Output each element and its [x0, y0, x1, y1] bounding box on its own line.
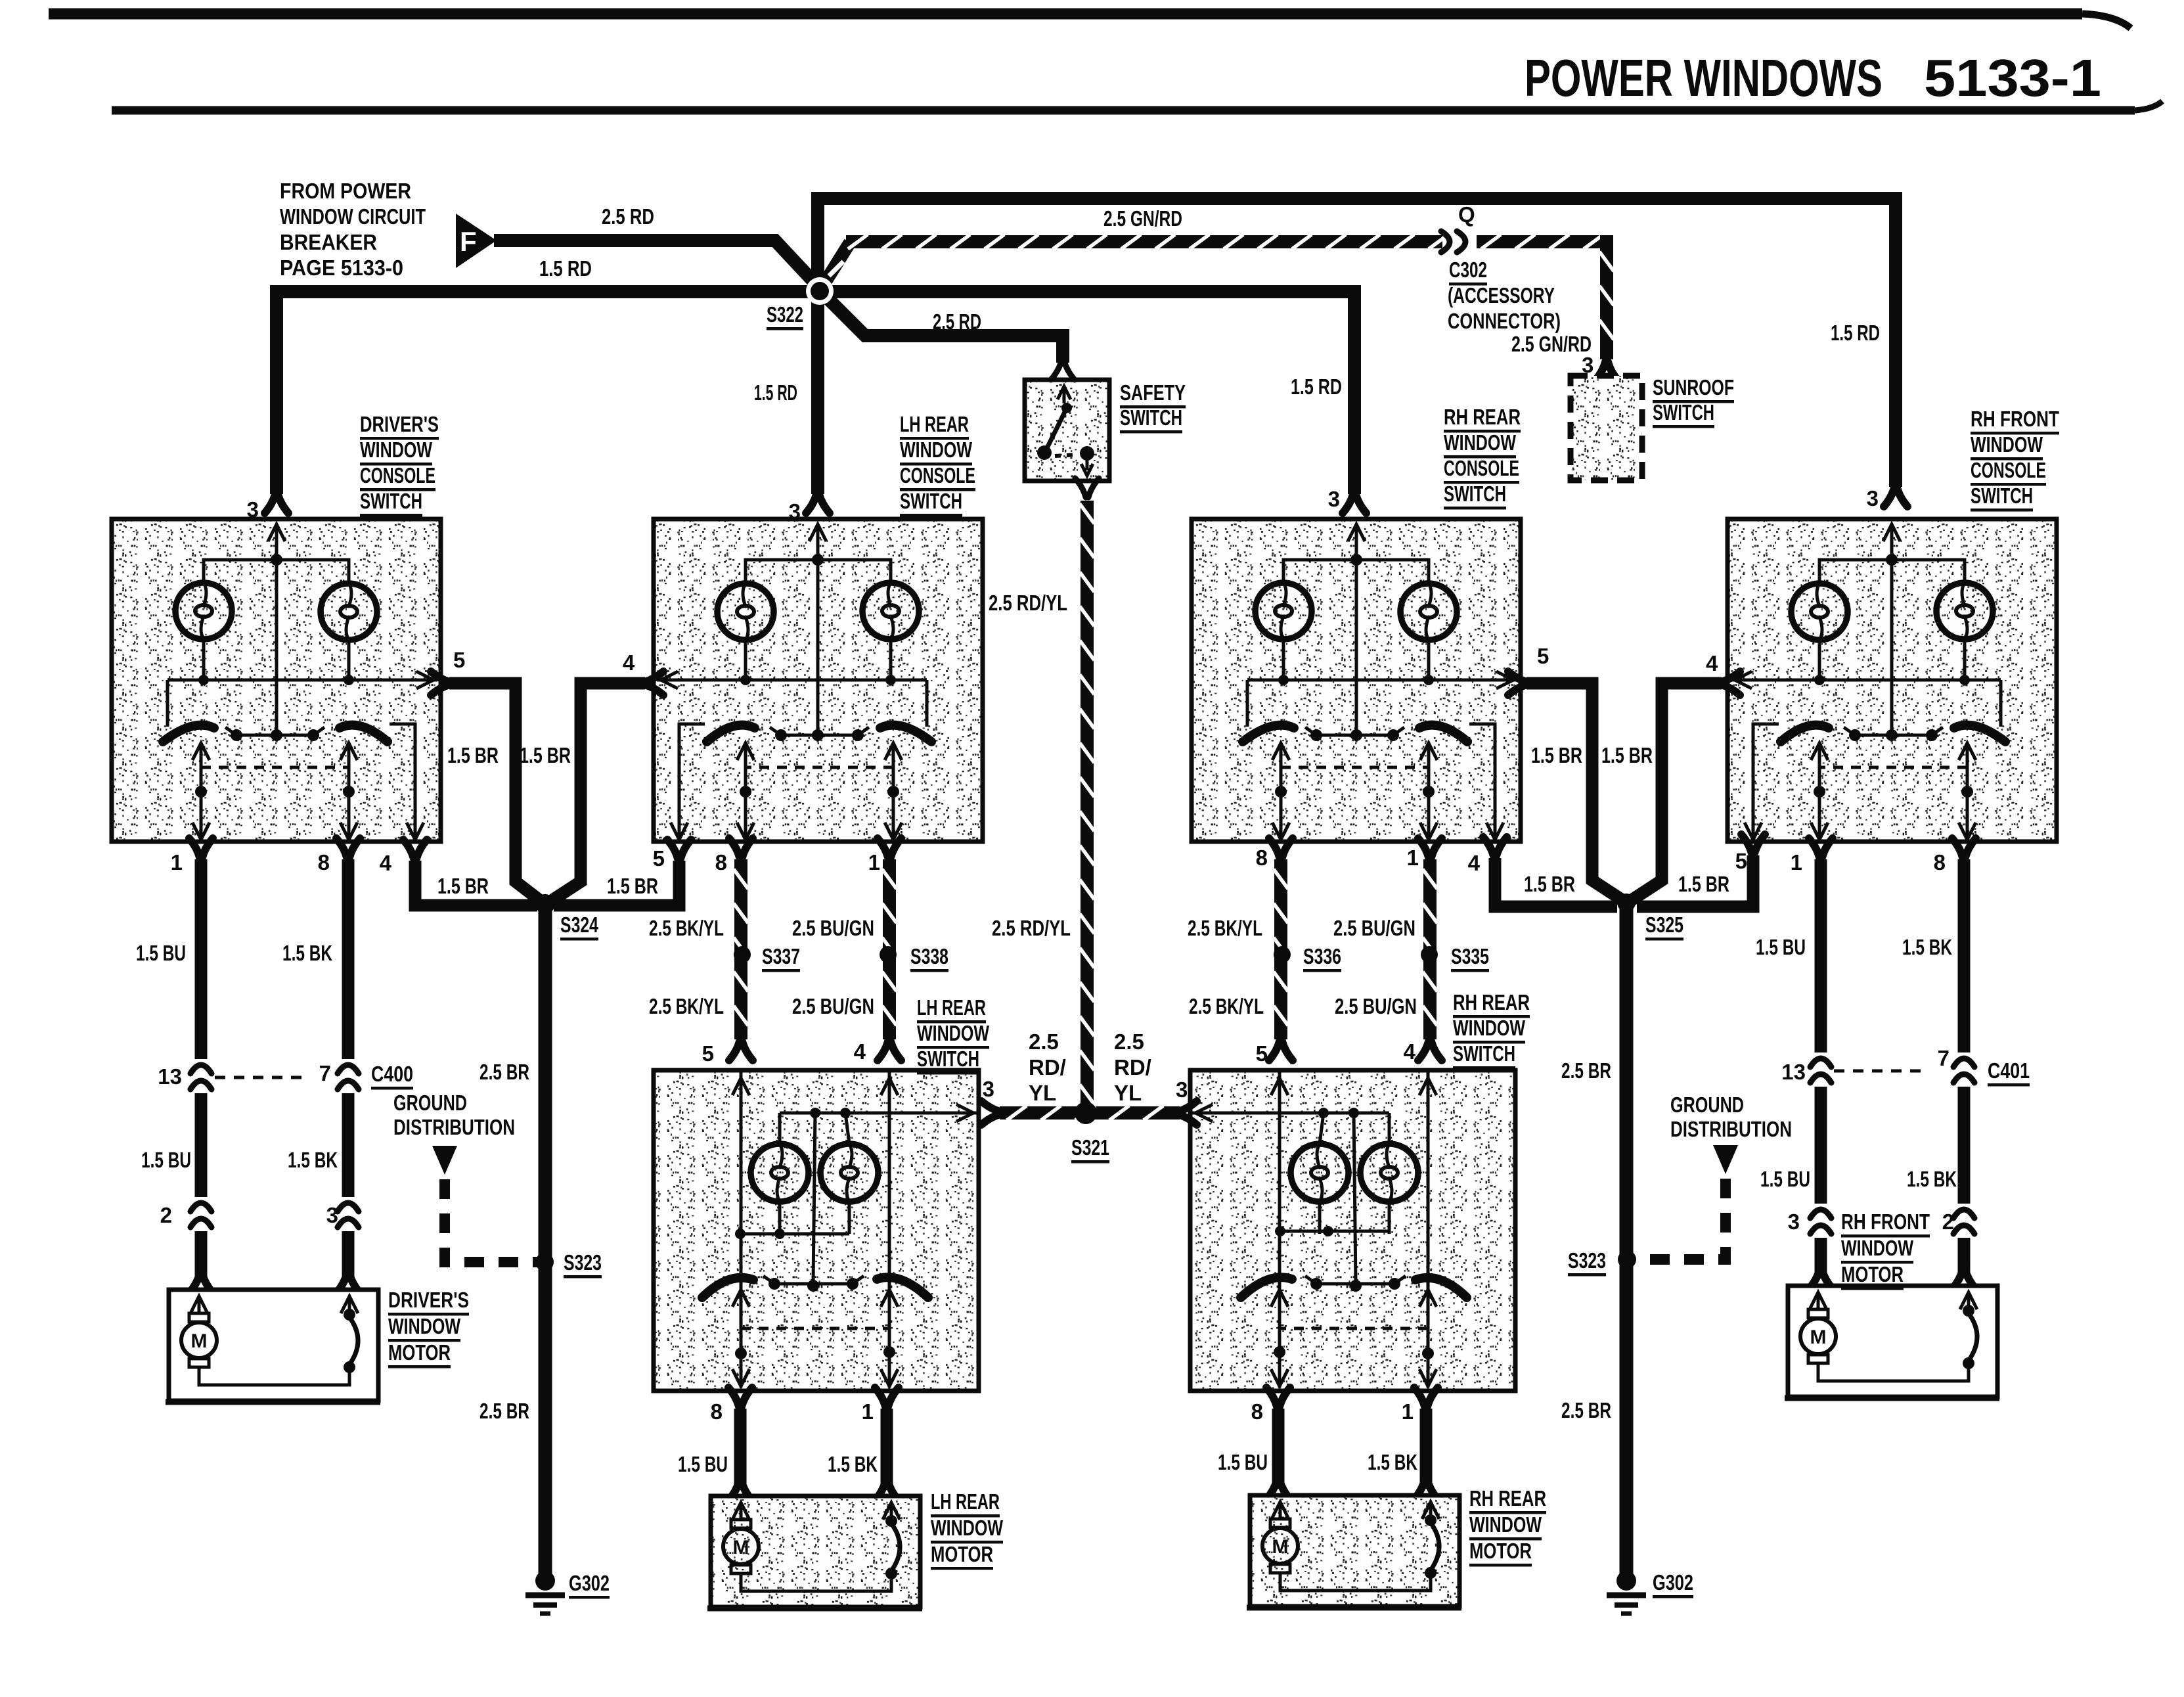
svg-text:1.5 BK: 1.5 BK [828, 1452, 878, 1476]
svg-text:1.5 BK: 1.5 BK [288, 1148, 338, 1172]
svg-text:5133-1: 5133-1 [1924, 49, 2101, 107]
svg-text:13: 13 [158, 1064, 182, 1089]
svg-text:CONNECTOR): CONNECTOR) [1448, 309, 1561, 333]
svg-text:1.5 BK: 1.5 BK [1368, 1450, 1417, 1474]
svg-text:7: 7 [319, 1061, 331, 1085]
svg-text:1.5 RD: 1.5 RD [1291, 374, 1342, 399]
svg-text:1.5 BU: 1.5 BU [1218, 1450, 1268, 1474]
svg-text:RH REAR: RH REAR [1444, 405, 1521, 429]
svg-text:2.5 BK/YL: 2.5 BK/YL [649, 994, 724, 1018]
svg-text:CONSOLE: CONSOLE [1444, 456, 1519, 480]
svg-text:8: 8 [711, 1399, 723, 1424]
svg-text:WINDOW: WINDOW [360, 438, 433, 462]
svg-text:4: 4 [854, 1039, 866, 1064]
svg-text:1: 1 [171, 850, 183, 874]
svg-text:5: 5 [1735, 849, 1747, 873]
svg-text:SWITCH: SWITCH [1653, 400, 1714, 424]
svg-text:3: 3 [247, 497, 259, 522]
svg-text:2.5 BK/YL: 2.5 BK/YL [1189, 994, 1264, 1018]
svg-text:5: 5 [653, 846, 665, 871]
svg-text:1.5 BK: 1.5 BK [1907, 1167, 1957, 1191]
svg-text:2.5 BK/YL: 2.5 BK/YL [649, 916, 724, 940]
svg-text:M: M [1272, 1536, 1289, 1558]
svg-text:RH REAR: RH REAR [1453, 990, 1530, 1014]
svg-text:DISTRIBUTION: DISTRIBUTION [1670, 1117, 1792, 1141]
svg-text:WINDOW CIRCUIT: WINDOW CIRCUIT [280, 204, 426, 229]
svg-text:2.5 RD: 2.5 RD [933, 309, 981, 334]
svg-text:LH REAR: LH REAR [917, 995, 986, 1020]
svg-text:1.5 BR: 1.5 BR [1601, 743, 1653, 767]
svg-text:FROM POWER: FROM POWER [280, 179, 411, 203]
svg-text:RH FRONT: RH FRONT [1841, 1210, 1930, 1234]
svg-text:2.5 GN/RD: 2.5 GN/RD [1103, 206, 1182, 231]
svg-text:S325: S325 [1645, 913, 1683, 937]
svg-text:3: 3 [1328, 487, 1340, 511]
svg-text:WINDOW: WINDOW [1971, 432, 2043, 457]
svg-text:WINDOW: WINDOW [917, 1021, 990, 1045]
svg-text:S323: S323 [1568, 1248, 1606, 1273]
svg-text:PAGE 5133-0: PAGE 5133-0 [280, 256, 403, 280]
svg-text:1.5 BU: 1.5 BU [141, 1148, 191, 1172]
svg-text:Q: Q [1458, 202, 1475, 227]
svg-text:1: 1 [1791, 850, 1802, 874]
svg-text:WINDOW: WINDOW [388, 1314, 461, 1338]
svg-text:SWITCH: SWITCH [900, 489, 962, 513]
svg-text:S338: S338 [910, 944, 948, 968]
svg-text:1.5 BU: 1.5 BU [1760, 1167, 1810, 1191]
svg-text:WINDOW: WINDOW [900, 438, 973, 462]
svg-text:F: F [460, 226, 477, 257]
svg-text:BREAKER: BREAKER [280, 230, 377, 254]
svg-text:3: 3 [1867, 486, 1879, 510]
svg-text:SWITCH: SWITCH [360, 489, 422, 513]
svg-text:RD/: RD/ [1029, 1055, 1066, 1079]
svg-text:3: 3 [789, 499, 801, 524]
svg-text:2.5 RD/YL: 2.5 RD/YL [992, 916, 1071, 940]
svg-text:1: 1 [1407, 846, 1419, 870]
svg-text:1.5 RD: 1.5 RD [754, 380, 797, 405]
svg-text:SWITCH: SWITCH [1453, 1041, 1515, 1066]
svg-text:5: 5 [453, 648, 465, 672]
svg-text:C400: C400 [371, 1062, 413, 1086]
svg-text:C401: C401 [1988, 1058, 2030, 1083]
svg-text:1.5 BR: 1.5 BR [437, 874, 489, 898]
svg-text:MOTOR: MOTOR [1841, 1262, 1904, 1286]
svg-text:WINDOW: WINDOW [1841, 1236, 1914, 1260]
svg-text:2.5: 2.5 [1114, 1030, 1144, 1054]
svg-text:4: 4 [623, 650, 635, 675]
svg-text:MOTOR: MOTOR [388, 1340, 451, 1365]
svg-text:2.5 BR: 2.5 BR [479, 1060, 529, 1084]
svg-text:GROUND: GROUND [1670, 1093, 1744, 1117]
svg-text:3: 3 [1176, 1077, 1188, 1102]
svg-text:CONSOLE: CONSOLE [360, 463, 435, 487]
svg-text:DRIVER'S: DRIVER'S [388, 1288, 469, 1312]
svg-text:1: 1 [862, 1399, 874, 1424]
svg-text:WINDOW: WINDOW [1444, 430, 1517, 455]
svg-text:SUNROOF: SUNROOF [1653, 375, 1734, 399]
svg-text:1.5 RD: 1.5 RD [1831, 321, 1880, 345]
svg-text:2.5 BU/GN: 2.5 BU/GN [792, 916, 874, 940]
svg-text:S321: S321 [1071, 1135, 1109, 1160]
svg-text:4: 4 [380, 851, 392, 875]
svg-text:C302: C302 [1449, 258, 1487, 282]
svg-text:5: 5 [1537, 644, 1549, 668]
svg-text:4: 4 [1468, 851, 1481, 875]
svg-text:13: 13 [1781, 1060, 1806, 1084]
svg-text:1.5 BU: 1.5 BU [136, 941, 186, 965]
svg-text:1.5 BR: 1.5 BR [1531, 743, 1582, 767]
svg-text:SAFETY: SAFETY [1120, 380, 1186, 405]
svg-text:3: 3 [1788, 1210, 1800, 1234]
svg-text:1.5 BK: 1.5 BK [282, 941, 332, 965]
svg-text:8: 8 [1934, 850, 1946, 874]
svg-text:SWITCH: SWITCH [1120, 405, 1182, 430]
svg-text:1.5 BR: 1.5 BR [1524, 872, 1575, 896]
svg-text:2.5 RD: 2.5 RD [602, 204, 654, 229]
svg-text:S337: S337 [762, 944, 800, 968]
svg-text:8: 8 [318, 850, 330, 874]
svg-text:1.5 BR: 1.5 BR [1678, 872, 1729, 896]
svg-text:LH REAR: LH REAR [900, 412, 969, 436]
svg-text:S322: S322 [767, 302, 803, 327]
svg-text:8: 8 [1251, 1399, 1263, 1424]
svg-text:2.5 GN/RD: 2.5 GN/RD [1511, 332, 1592, 356]
svg-text:SWITCH: SWITCH [917, 1047, 979, 1071]
svg-text:S336: S336 [1303, 944, 1341, 968]
svg-text:2.5 BU/GN: 2.5 BU/GN [1333, 916, 1415, 940]
svg-text:2: 2 [160, 1203, 172, 1227]
svg-text:5: 5 [702, 1041, 714, 1066]
svg-text:1.5 BK: 1.5 BK [1902, 935, 1952, 959]
svg-text:G302: G302 [1653, 1570, 1693, 1595]
svg-text:DISTRIBUTION: DISTRIBUTION [393, 1115, 515, 1139]
svg-text:1.5 BU: 1.5 BU [1756, 935, 1806, 959]
svg-text:YL: YL [1114, 1081, 1142, 1105]
svg-text:2.5 RD/YL: 2.5 RD/YL [989, 591, 1067, 615]
svg-text:M: M [733, 1537, 749, 1558]
svg-text:1.5 BR: 1.5 BR [520, 743, 571, 767]
svg-text:1.5 BR: 1.5 BR [607, 874, 658, 898]
svg-text:S323: S323 [564, 1250, 602, 1275]
svg-text:SWITCH: SWITCH [1971, 484, 2033, 508]
svg-text:RD/: RD/ [1114, 1055, 1151, 1079]
svg-text:5: 5 [1256, 1041, 1268, 1066]
svg-text:M: M [1810, 1326, 1827, 1348]
svg-text:1.5 BU: 1.5 BU [678, 1452, 728, 1476]
svg-text:2.5 BR: 2.5 BR [479, 1399, 529, 1423]
svg-text:CONSOLE: CONSOLE [1971, 458, 2046, 482]
svg-text:2.5 BK/YL: 2.5 BK/YL [1188, 916, 1262, 940]
svg-text:RH FRONT: RH FRONT [1971, 407, 2059, 431]
svg-text:S335: S335 [1451, 944, 1489, 968]
svg-text:WINDOW: WINDOW [1469, 1512, 1542, 1537]
svg-text:G302: G302 [569, 1571, 610, 1595]
svg-text:SWITCH: SWITCH [1444, 482, 1506, 506]
svg-text:4: 4 [1404, 1039, 1416, 1064]
svg-text:8: 8 [1256, 846, 1268, 870]
svg-text:2: 2 [1942, 1210, 1954, 1234]
svg-text:RH REAR: RH REAR [1469, 1486, 1546, 1510]
svg-text:YL: YL [1029, 1081, 1056, 1105]
svg-text:LH REAR: LH REAR [931, 1489, 1000, 1514]
svg-text:(ACCESSORY: (ACCESSORY [1448, 283, 1555, 307]
svg-text:1: 1 [1402, 1399, 1414, 1424]
svg-text:8: 8 [715, 850, 727, 874]
svg-text:2.5 BR: 2.5 BR [1561, 1058, 1611, 1083]
svg-text:POWER WINDOWS: POWER WINDOWS [1525, 49, 1883, 107]
svg-text:1.5 BR: 1.5 BR [447, 743, 499, 767]
svg-text:CONSOLE: CONSOLE [900, 463, 975, 487]
svg-text:M: M [191, 1330, 208, 1352]
svg-text:3: 3 [983, 1077, 994, 1101]
svg-text:GROUND: GROUND [393, 1091, 467, 1115]
svg-text:S324: S324 [560, 913, 598, 937]
svg-text:1.5 RD: 1.5 RD [539, 256, 592, 281]
svg-text:2.5: 2.5 [1029, 1030, 1059, 1054]
svg-text:MOTOR: MOTOR [931, 1542, 993, 1566]
svg-text:1: 1 [868, 850, 880, 874]
svg-text:2.5 BU/GN: 2.5 BU/GN [1335, 994, 1417, 1018]
svg-text:MOTOR: MOTOR [1469, 1539, 1532, 1563]
svg-text:3: 3 [326, 1203, 338, 1227]
svg-text:7: 7 [1938, 1046, 1950, 1070]
svg-text:DRIVER'S: DRIVER'S [360, 412, 439, 436]
svg-text:2.5 BR: 2.5 BR [1561, 1398, 1611, 1422]
svg-text:2.5 BU/GN: 2.5 BU/GN [792, 994, 874, 1018]
svg-text:WINDOW: WINDOW [1453, 1016, 1526, 1040]
svg-text:WINDOW: WINDOW [931, 1516, 1004, 1540]
svg-text:4: 4 [1706, 651, 1718, 675]
